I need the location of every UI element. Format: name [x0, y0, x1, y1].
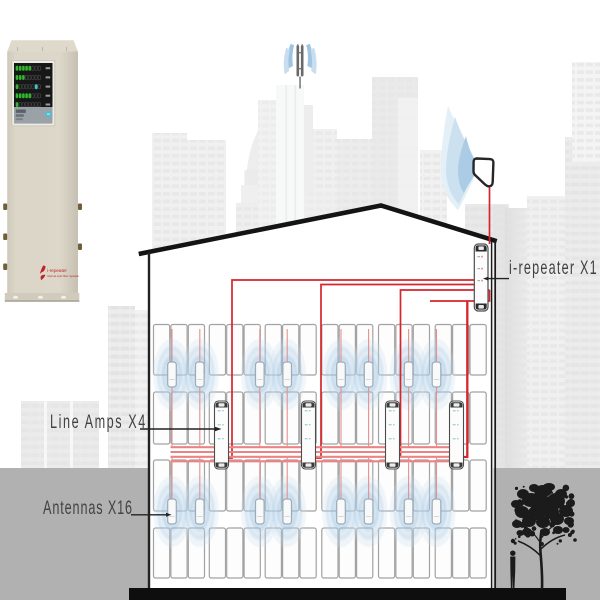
- svg-text:i-repeater: i-repeater: [47, 268, 67, 273]
- svg-text:i-repeater X1: i-repeater X1: [509, 257, 598, 278]
- svg-text:internal optic fiber repeater: internal optic fiber repeater: [47, 274, 79, 278]
- svg-text:Antennas X16: Antennas X16: [43, 497, 133, 518]
- svg-text:Line Amps X4: Line Amps X4: [50, 411, 147, 432]
